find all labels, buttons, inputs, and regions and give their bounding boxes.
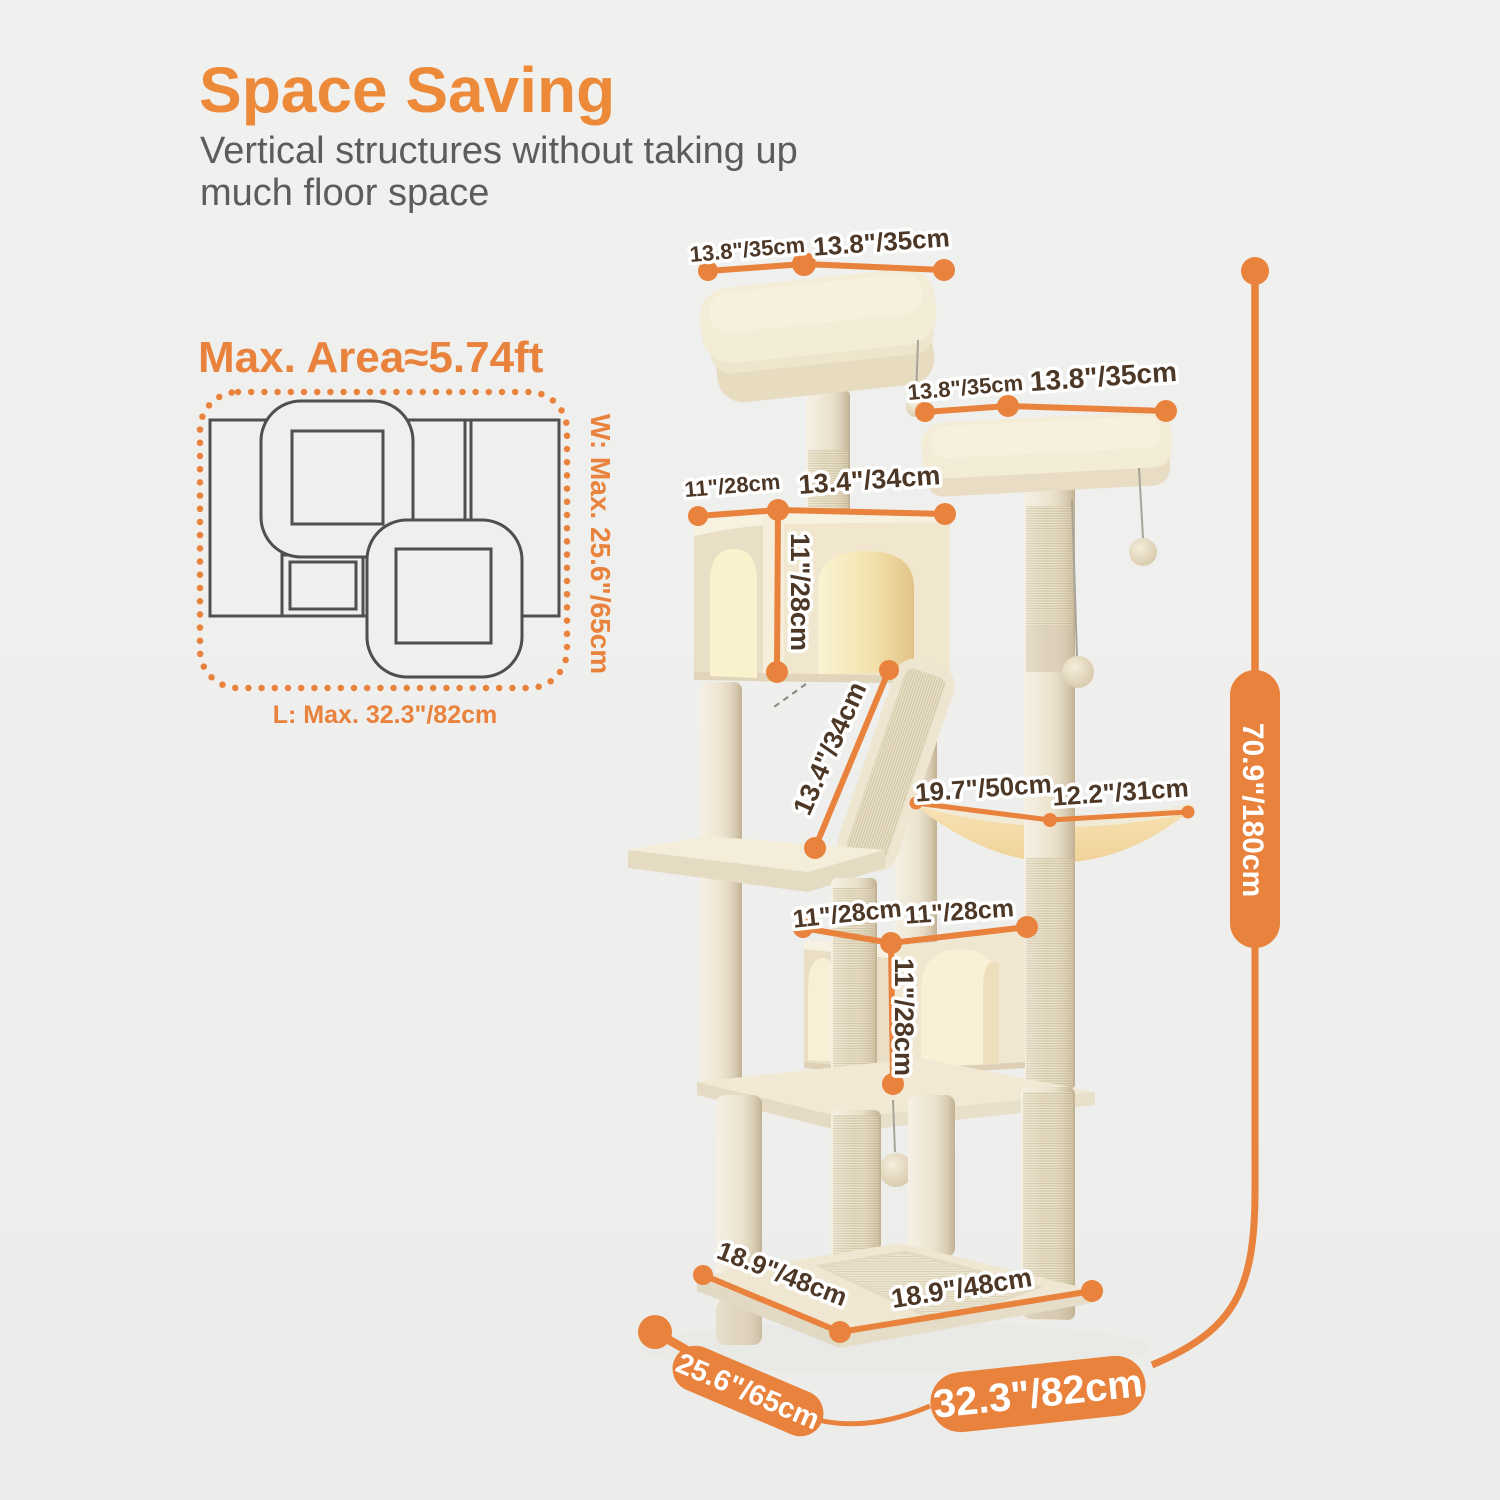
svg-text:11"/28cm: 11"/28cm xyxy=(785,533,815,651)
svg-text:11"/28cm: 11"/28cm xyxy=(889,958,919,1076)
svg-text:Max. Area≈5.74ft: Max. Area≈5.74ft xyxy=(198,333,544,382)
svg-text:70.9"/180cm: 70.9"/180cm xyxy=(1236,723,1269,897)
svg-text:Vertical structures without ta: Vertical structures without taking up xyxy=(200,130,798,172)
svg-text:much floor space: much floor space xyxy=(200,172,489,214)
svg-text:W: Max. 25.6"/65cm: W: Max. 25.6"/65cm xyxy=(585,414,616,674)
svg-text:Space Saving: Space Saving xyxy=(199,54,615,126)
svg-text:L: Max. 32.3"/82cm: L: Max. 32.3"/82cm xyxy=(273,701,497,729)
